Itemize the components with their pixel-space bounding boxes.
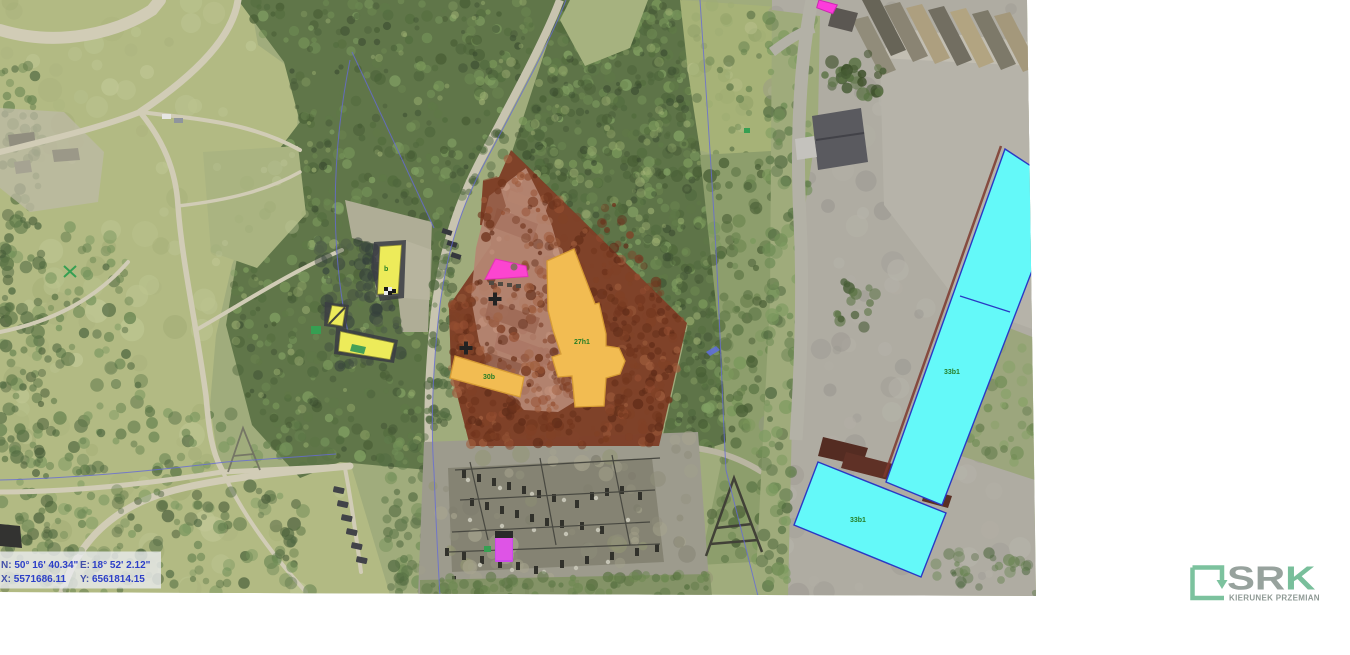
svg-text:SRK: SRK: [1227, 560, 1315, 597]
svg-text:KIERUNEK PRZEMIAN: KIERUNEK PRZEMIAN: [1229, 594, 1320, 603]
